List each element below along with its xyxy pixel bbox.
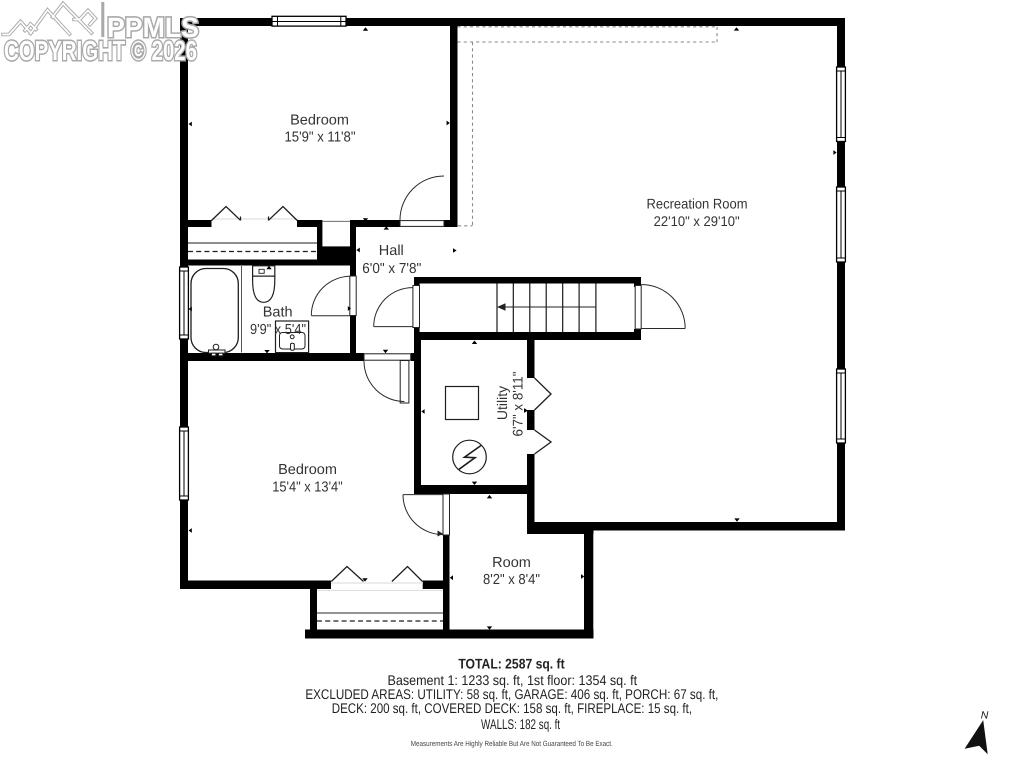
svg-text:Recreation Room: Recreation Room	[647, 195, 748, 211]
svg-text:N: N	[981, 710, 989, 722]
svg-text:15'9" x 11'8": 15'9" x 11'8"	[285, 130, 356, 146]
svg-text:Utility: Utility	[494, 386, 510, 420]
svg-text:6'0" x 7'8": 6'0" x 7'8"	[362, 261, 421, 277]
svg-text:Bath: Bath	[263, 305, 293, 321]
svg-text:6'7" x 8'11": 6'7" x 8'11"	[510, 371, 526, 436]
svg-text:8'2" x 8'4": 8'2" x 8'4"	[483, 572, 540, 588]
svg-text:TOTAL: 2587 sq. ft: TOTAL: 2587 sq. ft	[458, 656, 565, 672]
svg-text:9'9" x 5'4": 9'9" x 5'4"	[250, 322, 306, 338]
svg-text:Hall: Hall	[379, 243, 404, 259]
svg-text:Bedroom: Bedroom	[290, 112, 349, 128]
svg-text:15'4" x 13'4": 15'4" x 13'4"	[272, 480, 343, 496]
svg-text:Room: Room	[492, 555, 531, 571]
svg-text:Bedroom: Bedroom	[278, 462, 337, 478]
svg-text:22'10" x 29'10": 22'10" x 29'10"	[654, 213, 740, 229]
svg-text:DECK: 200 sq. ft, COVERED DECK: DECK: 200 sq. ft, COVERED DECK: 158 sq. …	[332, 700, 692, 716]
svg-text:Measurements Are Highly Reliab: Measurements Are Highly Reliable But Are…	[411, 739, 613, 748]
svg-text:WALLS: 182 sq. ft: WALLS: 182 sq. ft	[481, 716, 560, 732]
svg-text:COPYRIGHT © 2026: COPYRIGHT © 2026	[4, 35, 197, 66]
